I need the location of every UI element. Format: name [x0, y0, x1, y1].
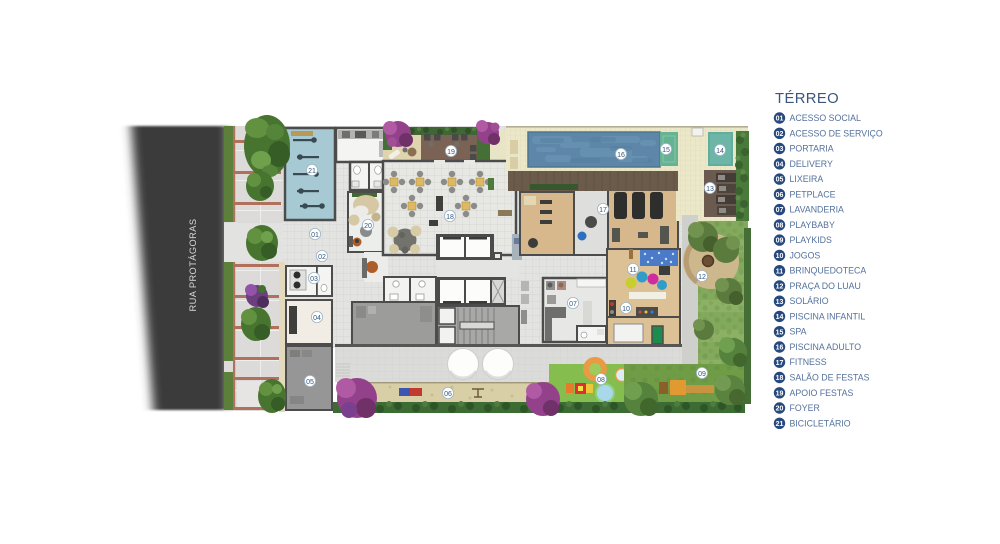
- svg-text:20: 20: [776, 406, 784, 413]
- svg-text:11: 11: [629, 267, 636, 274]
- svg-text:12: 12: [776, 284, 784, 291]
- svg-text:01: 01: [311, 232, 319, 239]
- svg-text:FOYER: FOYER: [790, 403, 820, 413]
- svg-text:04: 04: [776, 161, 784, 168]
- svg-text:18: 18: [446, 214, 454, 221]
- svg-text:04: 04: [313, 315, 321, 322]
- svg-text:SALÃO DE FESTAS: SALÃO DE FESTAS: [790, 373, 870, 383]
- svg-text:08: 08: [776, 223, 784, 230]
- svg-text:SPA: SPA: [790, 327, 807, 337]
- svg-text:15: 15: [662, 147, 670, 154]
- svg-text:01: 01: [776, 116, 784, 123]
- svg-text:16: 16: [776, 345, 784, 352]
- svg-text:20: 20: [364, 223, 372, 230]
- svg-text:07: 07: [776, 207, 784, 214]
- svg-text:RUA PROTÁGORAS: RUA PROTÁGORAS: [188, 219, 198, 312]
- svg-text:09: 09: [698, 371, 706, 378]
- svg-text:19: 19: [776, 390, 784, 397]
- svg-text:14: 14: [716, 148, 724, 155]
- svg-text:PETPLACE: PETPLACE: [790, 189, 836, 199]
- svg-text:03: 03: [310, 276, 318, 283]
- svg-text:05: 05: [776, 177, 784, 184]
- svg-text:APOIO FESTAS: APOIO FESTAS: [790, 388, 854, 398]
- svg-text:14: 14: [776, 314, 784, 321]
- svg-text:DELIVERY: DELIVERY: [790, 159, 833, 169]
- svg-text:11: 11: [776, 268, 784, 275]
- svg-text:LIXEIRA: LIXEIRA: [790, 174, 824, 184]
- svg-text:08: 08: [597, 377, 605, 384]
- svg-text:18: 18: [776, 375, 784, 382]
- svg-text:ACESSO DE SERVIÇO: ACESSO DE SERVIÇO: [790, 128, 883, 138]
- svg-text:12: 12: [698, 274, 706, 281]
- svg-text:BICICLETÁRIO: BICICLETÁRIO: [790, 418, 851, 428]
- svg-text:10: 10: [622, 306, 630, 313]
- svg-text:13: 13: [776, 299, 784, 306]
- svg-text:PLAYKIDS: PLAYKIDS: [790, 235, 833, 245]
- svg-text:13: 13: [706, 186, 714, 193]
- svg-text:ACESSO SOCIAL: ACESSO SOCIAL: [790, 113, 861, 123]
- svg-text:10: 10: [776, 253, 784, 260]
- svg-text:09: 09: [776, 238, 784, 245]
- svg-text:FITNESS: FITNESS: [790, 357, 827, 367]
- svg-text:PISCINA ADULTO: PISCINA ADULTO: [790, 342, 862, 352]
- svg-text:19: 19: [447, 149, 455, 156]
- svg-text:06: 06: [444, 391, 452, 398]
- svg-text:21: 21: [308, 168, 316, 175]
- svg-text:17: 17: [776, 360, 784, 367]
- svg-text:BRINQUEDOTECA: BRINQUEDOTECA: [790, 266, 867, 276]
- svg-text:PLAYBABY: PLAYBABY: [790, 220, 835, 230]
- svg-text:07: 07: [569, 301, 577, 308]
- svg-text:03: 03: [776, 146, 784, 153]
- svg-text:PORTARIA: PORTARIA: [790, 144, 834, 154]
- svg-text:PRAÇA DO LUAU: PRAÇA DO LUAU: [790, 281, 861, 291]
- svg-text:PISCINA INFANTIL: PISCINA INFANTIL: [790, 311, 866, 321]
- svg-text:05: 05: [306, 379, 314, 386]
- svg-text:16: 16: [617, 152, 625, 159]
- svg-text:SOLÁRIO: SOLÁRIO: [790, 296, 829, 306]
- svg-text:LAVANDERIA: LAVANDERIA: [790, 205, 845, 215]
- svg-text:02: 02: [776, 131, 784, 138]
- svg-text:17: 17: [599, 207, 607, 214]
- svg-text:21: 21: [776, 421, 784, 428]
- svg-text:15: 15: [776, 329, 784, 336]
- svg-text:TÉRREO: TÉRREO: [775, 90, 839, 107]
- svg-text:06: 06: [776, 192, 784, 199]
- svg-text:JOGOS: JOGOS: [790, 250, 821, 260]
- svg-text:02: 02: [318, 254, 326, 261]
